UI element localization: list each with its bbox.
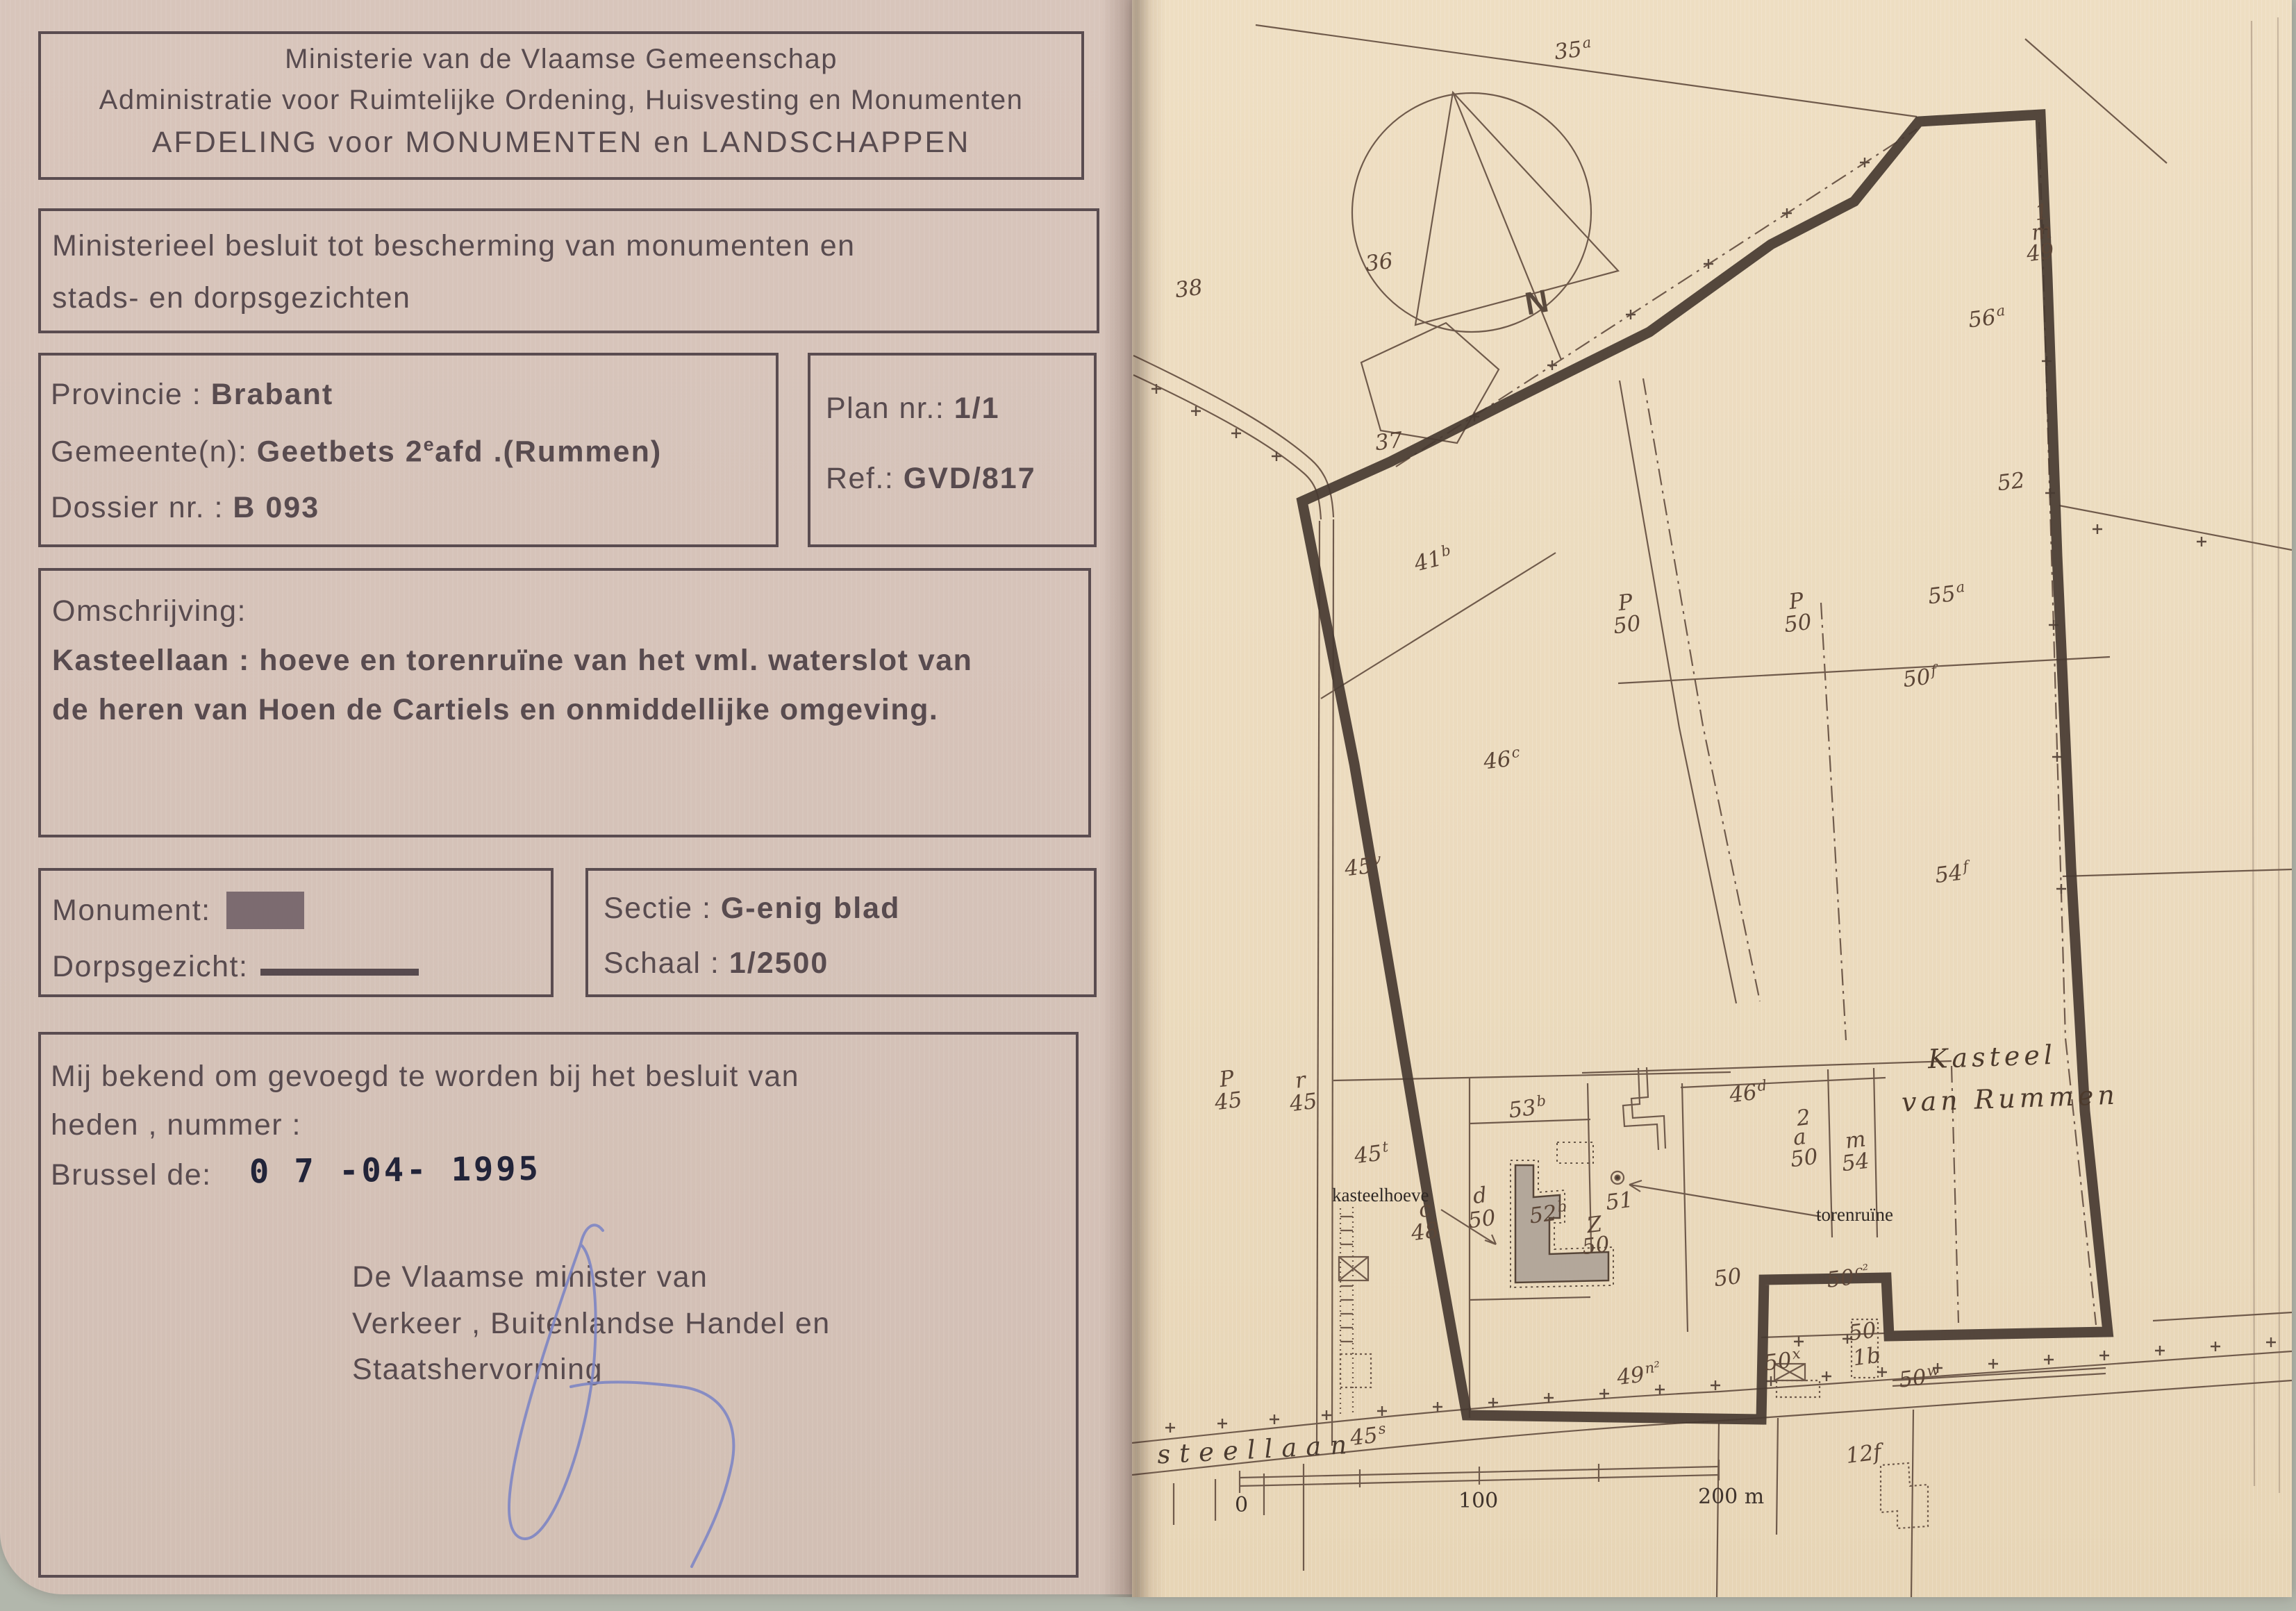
header-box: Ministerie van de Vlaamse Gemeenschap Ad… — [38, 31, 1084, 180]
description-line1: Kasteellaan : hoeve en torenruïne van he… — [52, 644, 1088, 678]
decree-box: Ministerieel besluit tot bescherming van… — [38, 208, 1099, 333]
parcel-label: 37 — [1374, 428, 1404, 456]
municipality-row: Gemeente(n): Geetbets 2eafd .(Rummen) — [51, 434, 776, 469]
parcel-label: d — [1472, 1183, 1488, 1209]
description-line2: de heren van Hoen de Cartiels en onmidde… — [52, 693, 1088, 727]
schaal-row: Schaal : 1/2500 — [604, 946, 1094, 980]
municipality-sup: e — [424, 434, 435, 455]
description-title: Omschrijving: — [52, 594, 1088, 628]
scanned-protection-plan: { "document": { "header": { "line1": "Mi… — [0, 0, 2296, 1611]
decree-line2: stads- en dorpsgezichten — [52, 281, 1097, 315]
scale-zero: 0 — [1235, 1493, 1248, 1517]
parcel-label: 50f — [1902, 662, 1939, 692]
date-stamp: 0 7 -04- 1995 — [249, 1150, 541, 1191]
parcel-label: 50 — [1467, 1205, 1497, 1234]
dorpsgezicht-line-symbol — [260, 969, 419, 976]
parcel-label: 54 — [1840, 1149, 1871, 1177]
brussel-label: Brussel de: — [51, 1158, 212, 1192]
plan-box: Plan nr.: 1/1 Ref.: GVD/817 — [808, 353, 1097, 547]
parcel-label: 48 — [1410, 1218, 1440, 1246]
parcel-label: 46d — [1728, 1077, 1769, 1108]
monument-label: Monument: — [52, 894, 211, 928]
administration-line: Administratie voor Ruimtelijke Ordening,… — [41, 85, 1081, 116]
map-page: 35a38363756a1m495255aP50P5041b45v46c50f5… — [1132, 0, 2292, 1597]
scale-twohundred: 200 m — [1698, 1485, 1764, 1509]
signature — [444, 1210, 833, 1585]
plan-value: 1/1 — [954, 392, 1000, 425]
parcel-label: 50 — [1789, 1144, 1820, 1173]
torenruine-annotation: torenruïne — [1816, 1204, 1893, 1226]
parcel-label: 53b — [1507, 1092, 1548, 1124]
schaal-value: 1/2500 — [729, 946, 829, 980]
parcel-label: 54f — [1933, 858, 1971, 888]
department-line: AFDELING voor MONUMENTEN en LANDSCHAPPEN — [41, 126, 1081, 160]
description-box: Omschrijving: Kasteellaan : hoeve en tor… — [38, 568, 1091, 837]
ref-label: Ref.: — [826, 462, 894, 495]
dossier-row: Dossier nr. : B 093 — [51, 491, 776, 525]
parcel-label: 38 — [1174, 275, 1204, 303]
dossier-label: Dossier nr. : — [51, 491, 224, 524]
schaal-label: Schaal : — [604, 946, 719, 980]
parcel-label: 56a — [1967, 302, 2007, 333]
kasteelhoeve-annotation: kasteelhoeve — [1332, 1185, 1429, 1206]
monument-swatch — [226, 892, 304, 929]
parcel-label: 50w — [1897, 1362, 1942, 1393]
scale-hundred: 100 — [1458, 1489, 1498, 1513]
dossier-value: B 093 — [233, 491, 319, 524]
parcel-label: 46c — [1482, 744, 1522, 775]
parcel-label: 45 — [1213, 1087, 1244, 1116]
plan-row: Plan nr.: 1/1 — [826, 392, 1094, 426]
parcel-label: 50 — [1581, 1232, 1611, 1260]
dorpsgezicht-label: Dorpsgezicht: — [52, 950, 248, 984]
parcel-label: 45t — [1353, 1138, 1390, 1169]
document-page: Ministerie van de Vlaamse Gemeenschap Ad… — [0, 0, 1133, 1594]
parcel-label: 35a — [1553, 34, 1593, 65]
parcel-label: 50c² — [1825, 1261, 1871, 1293]
monument-row: Monument: — [52, 892, 551, 929]
parcel-label: Kasteel — [1927, 1040, 2056, 1074]
province-label: Provincie : — [51, 378, 201, 411]
plan-label: Plan nr.: — [826, 392, 945, 425]
note-line2: heden , nummer : — [51, 1108, 301, 1142]
parcel-label: 12f — [1845, 1439, 1883, 1469]
decree-line1: Ministerieel besluit tot bescherming van… — [52, 229, 1097, 263]
parcel-label: 55a — [1927, 578, 1967, 610]
parcel-label: 50 — [1612, 611, 1642, 640]
parcel-label: 50x — [1763, 1345, 1803, 1376]
ref-value: GVD/817 — [904, 462, 1036, 495]
ref-row: Ref.: GVD/817 — [826, 462, 1094, 496]
ministry-line: Ministerie van de Vlaamse Gemeenschap — [41, 44, 1081, 75]
province-box: Provincie : Brabant Gemeente(n): Geetbet… — [38, 353, 779, 547]
parcel-label: 52 — [1996, 468, 2027, 496]
section-box: Sectie : G-enig blad Schaal : 1/2500 — [585, 868, 1097, 997]
municipality-label: Gemeente(n): — [51, 435, 247, 468]
map-labels: 35a38363756a1m495255aP50P5041b45v46c50f5… — [1132, 0, 2292, 1597]
parcel-label: 50 — [1783, 610, 1813, 638]
parcel-label: 51 — [1604, 1187, 1635, 1216]
parcel-label: 49 — [2025, 239, 2056, 267]
note-line1: Mij bekend om gevoegd te worden bij het … — [51, 1060, 799, 1094]
sectie-row: Sectie : G-enig blad — [604, 892, 1094, 926]
parcel-label: van Rummen — [1901, 1080, 2119, 1118]
parcel-label: 50 — [1847, 1318, 1878, 1346]
municipality-value: Geetbets 2 — [257, 435, 424, 468]
municipality-value-post: afd .(Rummen) — [435, 435, 662, 468]
sectie-value: G-enig blad — [721, 892, 901, 925]
dorpsgezicht-row: Dorpsgezicht: — [52, 950, 551, 984]
parcel-label: 45v — [1343, 851, 1383, 882]
legend-box: Monument: Dorpsgezicht: — [38, 868, 554, 997]
sectie-label: Sectie : — [604, 892, 711, 925]
parcel-label: 45 — [1288, 1089, 1319, 1117]
parcel-label: 36 — [1364, 249, 1395, 277]
parcel-label: 49n² — [1615, 1358, 1663, 1390]
parcel-label: 1b — [1852, 1343, 1882, 1371]
parcel-label: 50 — [1713, 1264, 1743, 1292]
province-row: Provincie : Brabant — [51, 378, 776, 412]
province-value: Brabant — [211, 378, 333, 411]
parcel-label: 52b — [1528, 1198, 1569, 1229]
parcel-label: 41b — [1411, 542, 1455, 576]
